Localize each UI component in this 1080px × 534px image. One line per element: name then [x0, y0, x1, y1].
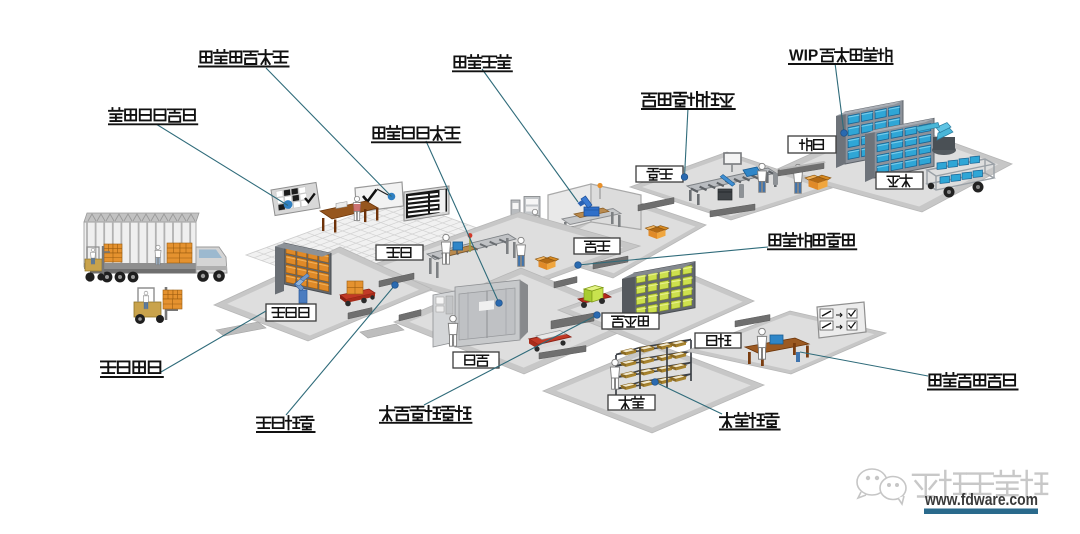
svg-text:WIP: WIP — [789, 48, 818, 65]
svg-text:www.fdware.com: www.fdware.com — [924, 491, 1038, 509]
